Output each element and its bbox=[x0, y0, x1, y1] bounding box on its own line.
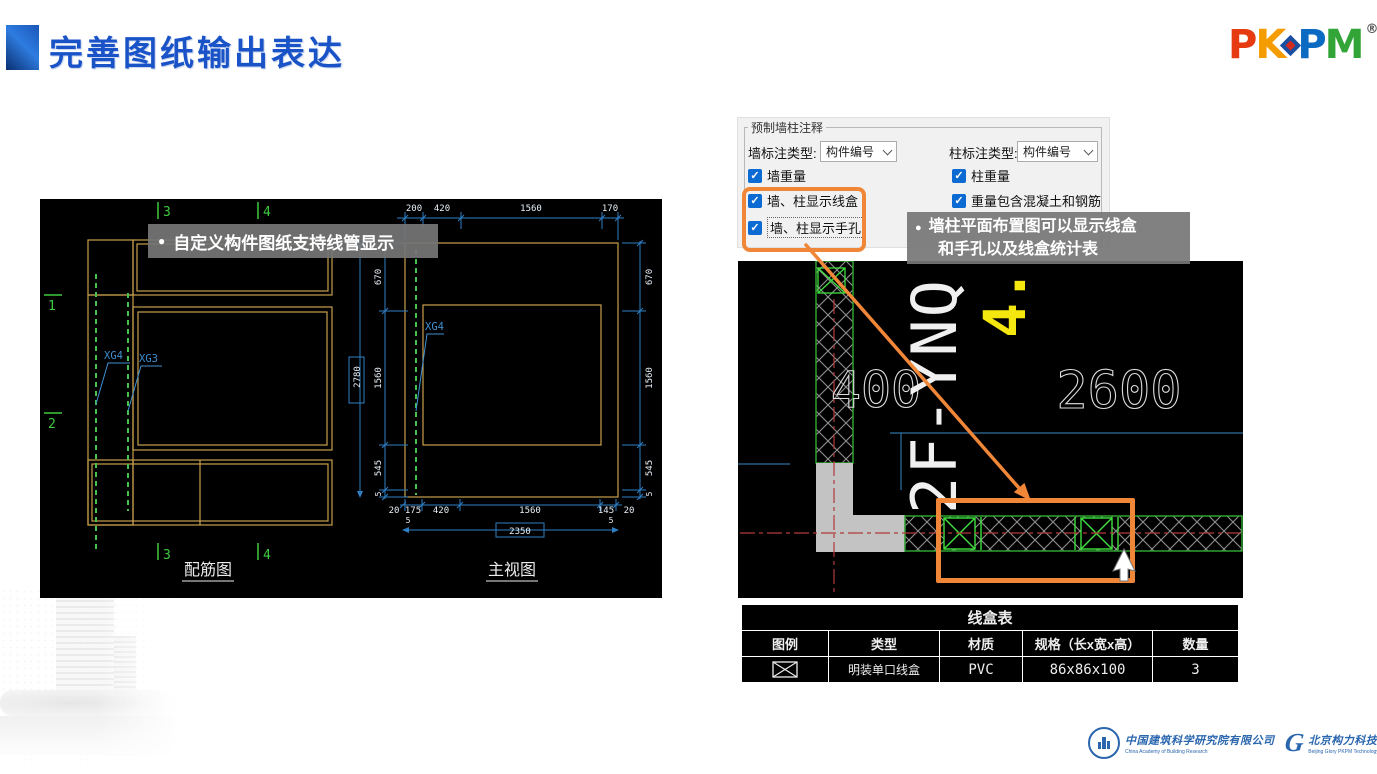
svg-text:XG3: XG3 bbox=[139, 353, 158, 365]
svg-text:4: 4 bbox=[263, 548, 271, 563]
pkpm-logo: PKPM ® bbox=[1228, 22, 1377, 68]
svg-text:1: 1 bbox=[48, 299, 56, 314]
cabr-logo: 中国建筑科学研究院有限公司 China Academy of Building … bbox=[1088, 727, 1275, 759]
callout-plan-linebox: ●墙柱平面布置图可以显示线盒 和手孔以及线盒统计表 bbox=[907, 212, 1190, 264]
svg-text:5: 5 bbox=[645, 491, 654, 496]
col-header-legend: 图例 bbox=[742, 631, 828, 656]
col-header-size: 规格（长x宽x高） bbox=[1023, 631, 1152, 656]
checkbox-label: 柱重量 bbox=[971, 166, 1010, 185]
checkbox-checked-icon[interactable]: ✓ bbox=[952, 194, 966, 208]
svg-text:4: 4 bbox=[263, 205, 271, 220]
building-watermark bbox=[0, 588, 178, 774]
cad-drawing-panel-left: 34 34 12 bbox=[40, 199, 662, 598]
glory-name-cn: 北京构力科技有限公司 bbox=[1308, 732, 1377, 748]
svg-text:20: 20 bbox=[624, 506, 635, 516]
wall-type-select[interactable]: 构件编号 bbox=[820, 141, 897, 162]
cell-type: 明装单口线盒 bbox=[829, 657, 939, 682]
checkbox-checked-icon[interactable]: ✓ bbox=[748, 169, 762, 183]
conduit-labels: XG4 XG3 XG4 bbox=[104, 321, 444, 365]
svg-text:420: 420 bbox=[434, 204, 450, 214]
bullet-icon: ● bbox=[915, 222, 922, 234]
svg-text:170: 170 bbox=[602, 204, 618, 214]
checkbox-wall-weight[interactable]: ✓ 墙重量 bbox=[748, 166, 806, 185]
svg-text:545: 545 bbox=[645, 460, 655, 476]
column-type-select[interactable]: 构件编号 bbox=[1017, 141, 1098, 162]
linebox-table: 线盒表 图例 类型 材质 规格（长x宽x高） 数量 明装单口线盒 PVC 86x… bbox=[740, 603, 1240, 684]
wall-type-label: 墙标注类型: bbox=[748, 143, 817, 162]
page-title: 完善图纸输出表达 bbox=[49, 26, 345, 75]
svg-text:2350: 2350 bbox=[509, 527, 531, 537]
select-value: 构件编号 bbox=[826, 143, 874, 160]
svg-text:3: 3 bbox=[163, 548, 171, 563]
svg-text:670: 670 bbox=[374, 269, 384, 285]
svg-text:5: 5 bbox=[406, 516, 411, 525]
svg-text:XG4: XG4 bbox=[425, 321, 444, 333]
cabr-name-en: China Academy of Building Research bbox=[1125, 749, 1275, 755]
svg-text:配筋图: 配筋图 bbox=[184, 561, 232, 579]
col-header-type: 类型 bbox=[829, 631, 939, 656]
cabr-name-cn: 中国建筑科学研究院有限公司 bbox=[1125, 732, 1275, 748]
conduit-leader-lines bbox=[96, 334, 444, 411]
svg-text:545: 545 bbox=[374, 460, 384, 476]
cabr-circle-icon bbox=[1088, 727, 1120, 759]
title-accent-square bbox=[6, 25, 39, 70]
logo-letter: M bbox=[1325, 22, 1363, 68]
axis-marker-labels: 34 34 12 bbox=[48, 205, 271, 563]
cell-material: PVC bbox=[940, 657, 1022, 682]
callout-text: 自定义构件图纸支持线管显示 bbox=[173, 229, 394, 254]
svg-text:3: 3 bbox=[163, 205, 171, 220]
svg-text:2780: 2780 bbox=[353, 366, 363, 388]
svg-text:670: 670 bbox=[645, 269, 655, 285]
highlight-box-lineboxes bbox=[936, 498, 1135, 583]
col-header-material: 材质 bbox=[940, 631, 1022, 656]
slide: 完善图纸输出表达 PKPM ® 34 34 12 bbox=[0, 0, 1377, 774]
svg-text:420: 420 bbox=[433, 506, 449, 516]
chevron-down-icon bbox=[1084, 145, 1094, 155]
drawing-titles: 配筋图 主视图 bbox=[184, 561, 536, 579]
svg-text:5: 5 bbox=[374, 491, 383, 496]
callout-line1: ●墙柱平面布置图可以显示线盒 bbox=[915, 216, 1182, 239]
box-x-icon bbox=[772, 661, 798, 678]
callout-conduit-display: ● 自定义构件图纸支持线管显示 bbox=[148, 224, 438, 258]
cell-qty: 3 bbox=[1153, 657, 1238, 682]
cell-size: 86x86x100 bbox=[1023, 657, 1152, 682]
fade-overlay bbox=[0, 588, 178, 774]
svg-text:主视图: 主视图 bbox=[488, 561, 536, 579]
svg-text:200: 200 bbox=[406, 204, 422, 214]
floor-mark-text: 4. bbox=[971, 268, 1039, 338]
logo-letter: P bbox=[1228, 22, 1255, 68]
checkbox-label: 墙重量 bbox=[767, 166, 806, 185]
groupbox-title: 预制墙柱注释 bbox=[748, 119, 826, 136]
cad-left-svg: 34 34 12 bbox=[40, 199, 662, 598]
checkbox-column-weight[interactable]: ✓ 柱重量 bbox=[952, 166, 1010, 185]
svg-text:1560: 1560 bbox=[374, 367, 384, 389]
table-title: 线盒表 bbox=[742, 605, 1238, 630]
svg-text:1560: 1560 bbox=[519, 506, 541, 516]
glory-name-en: Beijing Glory PKPM Technology Co.,Ltd. bbox=[1308, 749, 1377, 755]
svg-text:175: 175 bbox=[405, 506, 421, 516]
highlight-box-checkboxes bbox=[742, 187, 866, 252]
reference-lines bbox=[738, 433, 1243, 490]
glory-pkpm-logo: G 北京构力科技有限公司 Beijing Glory PKPM Technolo… bbox=[1285, 730, 1377, 756]
svg-text:2: 2 bbox=[48, 417, 56, 432]
select-value: 构件编号 bbox=[1023, 143, 1071, 160]
checkbox-checked-icon[interactable]: ✓ bbox=[952, 169, 966, 183]
chevron-down-icon bbox=[883, 145, 893, 155]
footer-logos: 中国建筑科学研究院有限公司 China Academy of Building … bbox=[1088, 727, 1377, 759]
col-header-qty: 数量 bbox=[1153, 631, 1238, 656]
dim-2600-text: 2600 bbox=[1056, 361, 1181, 421]
svg-text:1560: 1560 bbox=[520, 204, 542, 214]
g-mark-icon: G bbox=[1283, 730, 1305, 756]
corner-wall-solid bbox=[816, 463, 905, 552]
svg-text:XG4: XG4 bbox=[104, 350, 123, 362]
callout-text: 墙柱平面布置图可以显示线盒 bbox=[929, 218, 1137, 235]
dimension-arrows bbox=[357, 242, 619, 533]
bullet-icon: ● bbox=[158, 234, 165, 248]
svg-text:1560: 1560 bbox=[645, 367, 655, 389]
building-icon bbox=[1096, 735, 1112, 751]
registered-mark: ® bbox=[1365, 22, 1377, 37]
wall-mark-text: 2F-YNQ bbox=[898, 278, 971, 514]
front-view-outline bbox=[405, 243, 618, 497]
rebar-drawing-outline bbox=[88, 240, 332, 525]
column-type-label: 柱标注类型: bbox=[949, 143, 1018, 162]
svg-text:20: 20 bbox=[389, 506, 400, 516]
svg-text:5: 5 bbox=[609, 516, 614, 525]
cell-legend-symbol bbox=[742, 657, 828, 682]
svg-text:145: 145 bbox=[598, 506, 614, 516]
callout-line2: 和手孔以及线盒统计表 bbox=[915, 239, 1182, 261]
checkbox-weight-concrete-rebar[interactable]: ✓ 重量包含混凝土和钢筋 bbox=[952, 191, 1101, 210]
checkbox-label: 重量包含混凝土和钢筋 bbox=[971, 191, 1101, 210]
